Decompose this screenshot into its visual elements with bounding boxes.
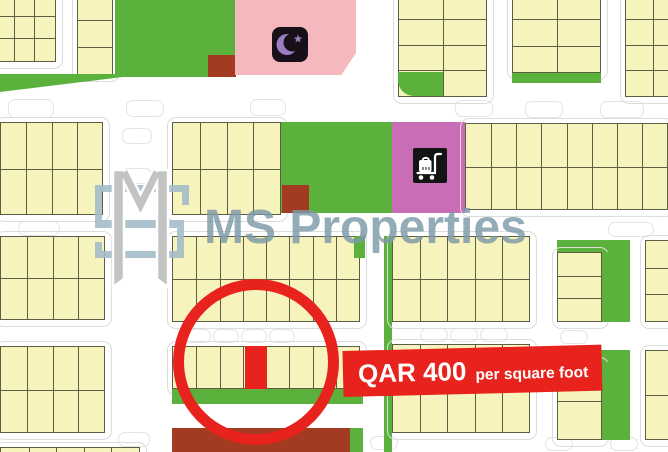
- plot-block: [77, 0, 113, 75]
- plot: [14, 16, 35, 39]
- plot: [642, 167, 667, 210]
- plot-block: [557, 252, 602, 322]
- plot: [1, 448, 29, 452]
- plot: [592, 167, 617, 210]
- plot-block: [0, 346, 105, 433]
- plot: [77, 123, 102, 169]
- plot: [14, 38, 35, 61]
- plot: [653, 19, 668, 45]
- plot: [78, 347, 104, 390]
- plot: [626, 19, 653, 45]
- price-banner: QAR 400 per square foot: [342, 345, 602, 397]
- plot: [475, 279, 502, 321]
- road-outline-mark: [250, 99, 286, 116]
- park-green-zone: [398, 72, 443, 96]
- plot: [84, 448, 112, 452]
- shopping-cart-icon: [413, 148, 447, 188]
- road-outline-mark: [525, 101, 563, 118]
- plot: [27, 237, 53, 278]
- plot: [0, 0, 14, 16]
- road-outline-mark: [122, 128, 152, 144]
- plot: [557, 46, 601, 72]
- plot: [1, 347, 27, 390]
- plot: [393, 279, 420, 321]
- plot: [475, 389, 502, 433]
- plot-block: [0, 447, 140, 452]
- plot-block: [0, 0, 56, 62]
- plot: [53, 347, 79, 390]
- plot: [1, 237, 27, 278]
- plot: [1, 123, 26, 169]
- plot: [653, 0, 668, 19]
- road-outline-mark: [8, 99, 54, 118]
- plot: [78, 0, 112, 20]
- plot: [541, 167, 566, 210]
- plot: [34, 16, 55, 39]
- plot: [646, 241, 668, 268]
- plot: [227, 123, 254, 169]
- watermark-text: MS Properties: [204, 200, 527, 255]
- plot: [78, 390, 104, 433]
- plot: [592, 124, 617, 167]
- plot: [653, 45, 668, 71]
- plot: [0, 38, 14, 61]
- plot: [53, 237, 79, 278]
- plot: [646, 294, 668, 321]
- highlight-circle-annotation: [173, 279, 339, 445]
- park-green-zone: [512, 73, 601, 83]
- plot: [466, 124, 491, 167]
- plot: [420, 279, 447, 321]
- plot: [653, 70, 668, 96]
- plot: [14, 0, 35, 16]
- plot: [626, 45, 653, 71]
- plot: [443, 0, 487, 19]
- plot: [1, 278, 27, 319]
- plot: [443, 45, 487, 71]
- plot-map: MS Properties QAR 400 per square: [0, 0, 668, 452]
- plot: [558, 253, 601, 276]
- plot: [626, 70, 653, 96]
- plot: [26, 169, 51, 215]
- plot: [200, 123, 227, 169]
- plot: [558, 401, 601, 439]
- plot: [56, 448, 84, 452]
- plot: [617, 167, 642, 210]
- price-amount: QAR 400: [357, 348, 466, 397]
- plot-block: [465, 123, 668, 210]
- plot: [617, 124, 642, 167]
- plot: [1, 390, 27, 433]
- plot: [642, 124, 667, 167]
- road-outline-mark: [560, 330, 588, 344]
- plot: [557, 19, 601, 45]
- plot: [78, 47, 112, 74]
- park-green-zone: [602, 252, 630, 322]
- plot-block: [645, 240, 668, 322]
- plot: [646, 268, 668, 295]
- plot: [78, 20, 112, 47]
- ms-properties-logo: [86, 167, 202, 293]
- plot: [447, 279, 474, 321]
- plot: [53, 278, 79, 319]
- plot: [443, 19, 487, 45]
- plot: [53, 390, 79, 433]
- plot-block: [645, 350, 668, 440]
- price-unit: per square foot: [475, 364, 588, 385]
- road-outline-mark: [126, 100, 164, 117]
- plot: [34, 0, 55, 16]
- plot: [491, 124, 516, 167]
- plot-block: [625, 0, 668, 97]
- plot: [29, 448, 57, 452]
- plot: [567, 167, 592, 210]
- plot: [52, 169, 77, 215]
- plot: [558, 298, 601, 321]
- park-green-zone: [350, 428, 363, 452]
- plot: [502, 279, 529, 321]
- park-green-zone: [602, 362, 630, 440]
- plot: [0, 16, 14, 39]
- plot: [567, 124, 592, 167]
- plot: [557, 0, 601, 19]
- plot: [558, 276, 601, 299]
- facility-brown-zone: [208, 55, 236, 77]
- plot: [626, 0, 653, 19]
- plot: [513, 19, 557, 45]
- plot: [27, 347, 53, 390]
- plot: [443, 70, 487, 96]
- plot: [253, 123, 280, 169]
- plot: [447, 389, 474, 433]
- plot: [646, 395, 668, 439]
- plot: [399, 45, 443, 71]
- plot: [52, 123, 77, 169]
- plot-block: [512, 0, 601, 73]
- plot: [541, 124, 566, 167]
- plot: [26, 123, 51, 169]
- plot: [1, 169, 26, 215]
- plot: [34, 38, 55, 61]
- plot: [502, 389, 529, 433]
- mosque-crescent-icon: [272, 27, 308, 67]
- plot: [646, 351, 668, 395]
- plot: [111, 448, 139, 452]
- plot: [399, 19, 443, 45]
- plot: [173, 123, 200, 169]
- plot: [513, 0, 557, 19]
- plot: [27, 390, 53, 433]
- plot: [399, 0, 443, 19]
- plot: [27, 278, 53, 319]
- plot: [516, 124, 541, 167]
- plot: [336, 279, 359, 321]
- plot: [513, 46, 557, 72]
- park-green-zone: [0, 74, 148, 92]
